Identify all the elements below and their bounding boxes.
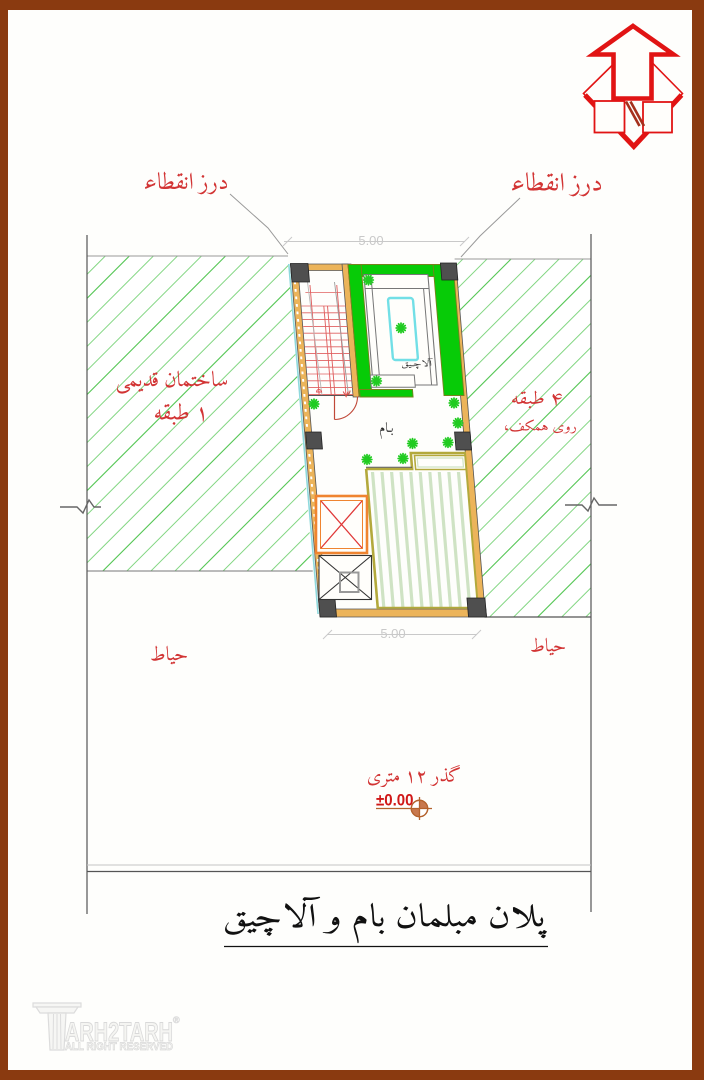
svg-text:5.00: 5.00: [358, 233, 383, 248]
svg-text:±0.00: ±0.00: [376, 792, 414, 810]
svg-text:5.00: 5.00: [380, 626, 405, 641]
svg-text:ALL RIGHT RESERVED: ALL RIGHT RESERVED: [65, 1041, 173, 1053]
svg-text:®: ®: [173, 1015, 180, 1025]
